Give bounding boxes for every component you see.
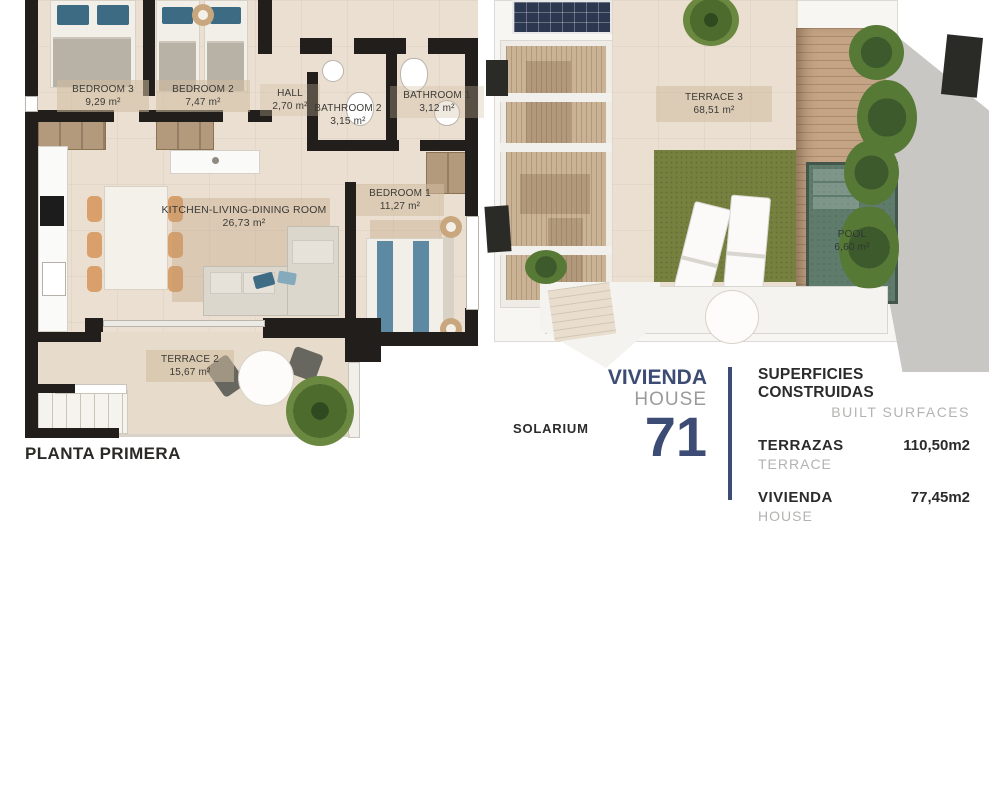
floorplan-sheet: BEDROOM 3 9,29 m² BEDROOM 2 7,47 m² HALL… [0,0,989,785]
wall-segment [465,150,478,216]
wall-segment [85,318,103,332]
surfaces-table: SUPERFICIES CONSTRUIDAS BUILT SURFACES T… [758,366,970,524]
ac-unit [484,205,511,253]
room-label-bedroom2: BEDROOM 2 7,47 m² [156,80,250,112]
wall-segment [25,428,119,438]
room-label-terrace3: TERRACE 3 68,51 m² [656,86,772,122]
lounger-fold [727,252,765,259]
room-area: 7,47 m² [158,96,248,109]
wall-segment [25,110,38,332]
solarium-caption: SOLARIUM [513,421,589,436]
room-label-bathroom2: BATHROOM 2 3,15 m² [304,102,392,128]
house-label-es: VIVIENDA [597,366,707,389]
faucet [212,157,219,164]
row-value: 77,45m2 [911,489,970,524]
sun-lounger [723,194,771,293]
room-area: 26,73 m² [158,217,330,230]
surfaces-row-labels: TERRAZAS TERRACE [758,437,844,472]
wall-segment [25,384,75,393]
row-label-es: TERRAZAS [758,437,844,454]
room-area: 9,29 m² [59,96,147,109]
wall-segment [263,318,347,338]
surfaces-title-en: BUILT SURFACES [758,404,970,420]
room-name: BEDROOM 3 [59,83,147,96]
potted-plant [525,250,567,284]
wall-segment [258,0,272,54]
pool-step [813,197,859,209]
room-area: 6,60 m² [816,241,888,254]
house-number: 71 [597,412,707,462]
dining-chair [87,196,102,222]
room-label-pool: POOL 6,60 m² [816,228,888,254]
pillow [57,5,89,25]
house-id-block: VIVIENDA HOUSE 71 [597,366,707,462]
furniture-shadow [526,61,571,151]
sofa-cushion [292,240,334,264]
wall-segment [345,182,356,332]
sliding-door [103,320,265,327]
room-label-bathroom1: BATHROOM 1 3,12 m² [390,86,484,118]
wall-segment [350,332,478,346]
row-label-es: VIVIENDA [758,489,833,506]
room-name: BEDROOM 1 [358,187,442,200]
window [25,96,38,112]
kitchen-sink [42,262,66,296]
room-label-terrace2: TERRACE 2 15,67 m² [146,350,234,382]
wall-segment [307,140,399,151]
row-value: 110,50m2 [903,437,970,472]
palm-plant [286,376,354,446]
wall-segment [300,38,332,54]
surfaces-row-terraces: TERRAZAS TERRACE 110,50m2 [758,437,970,472]
roof-stairs [548,282,617,342]
terrace-table [238,350,294,406]
room-area: 3,12 m² [392,102,482,115]
room-name: TERRACE 3 [658,91,770,104]
pillow [162,7,193,24]
room-name: BATHROOM 2 [304,102,392,115]
dining-chair [87,232,102,258]
room-area: 15,67 m² [148,366,232,379]
dining-chair [87,266,102,292]
ac-unit [486,60,508,96]
room-label-bedroom1: BEDROOM 1 11,27 m² [356,184,444,216]
lounger-fold [681,256,717,269]
first-floor-caption: PLANTA PRIMERA [25,444,181,464]
window [466,216,479,310]
pillow [210,7,241,24]
room-name: TERRACE 2 [148,353,232,366]
dining-table [104,186,168,290]
solar-panel [512,0,612,34]
first-floor-plan: BEDROOM 3 9,29 m² BEDROOM 2 7,47 m² HALL… [0,0,489,470]
pillow [97,5,129,25]
roof-table [705,290,759,344]
blanket-stripe [413,241,429,335]
room-area: 11,27 m² [358,200,442,213]
room-area: 3,15 m² [304,115,392,128]
room-label-bedroom3: BEDROOM 3 9,29 m² [57,80,149,112]
nightstand [440,216,462,238]
ac-unit [941,34,983,97]
room-area: 68,51 m² [658,104,770,117]
wall-segment [25,332,101,342]
pergola-beam [500,143,612,152]
double-bed [50,0,136,88]
surfaces-title-es: SUPERFICIES CONSTRUIDAS [758,366,970,402]
wall-segment [354,38,406,54]
row-label-en: HOUSE [758,508,833,524]
room-name: BATHROOM 1 [392,89,482,102]
room-name: HALL [262,87,318,100]
room-name: POOL [816,228,888,241]
kitchen-counter [38,146,68,332]
room-name: BEDROOM 2 [158,83,248,96]
bedside-table [192,4,214,26]
room-label-kitchen: KITCHEN-LIVING-DINING ROOM 26,73 m² [158,204,330,230]
pergola-beam [500,93,612,102]
row-label-en: TERRACE [758,456,844,472]
planting [844,140,899,205]
furniture-shadow [520,174,590,214]
info-divider [728,367,732,500]
room-name: KITCHEN-LIVING-DINING ROOM [158,204,330,217]
surfaces-row-labels: VIVIENDA HOUSE [758,489,833,524]
planting [849,25,904,80]
cooktop [40,196,64,226]
wall-segment [25,0,38,96]
washbasin [322,60,344,82]
solarium-plan: TERRACE 3 68,51 m² POOL 6,60 m² [489,0,989,380]
sofa-cushion [210,272,242,294]
surfaces-row-house: VIVIENDA HOUSE 77,45m2 [758,489,970,524]
